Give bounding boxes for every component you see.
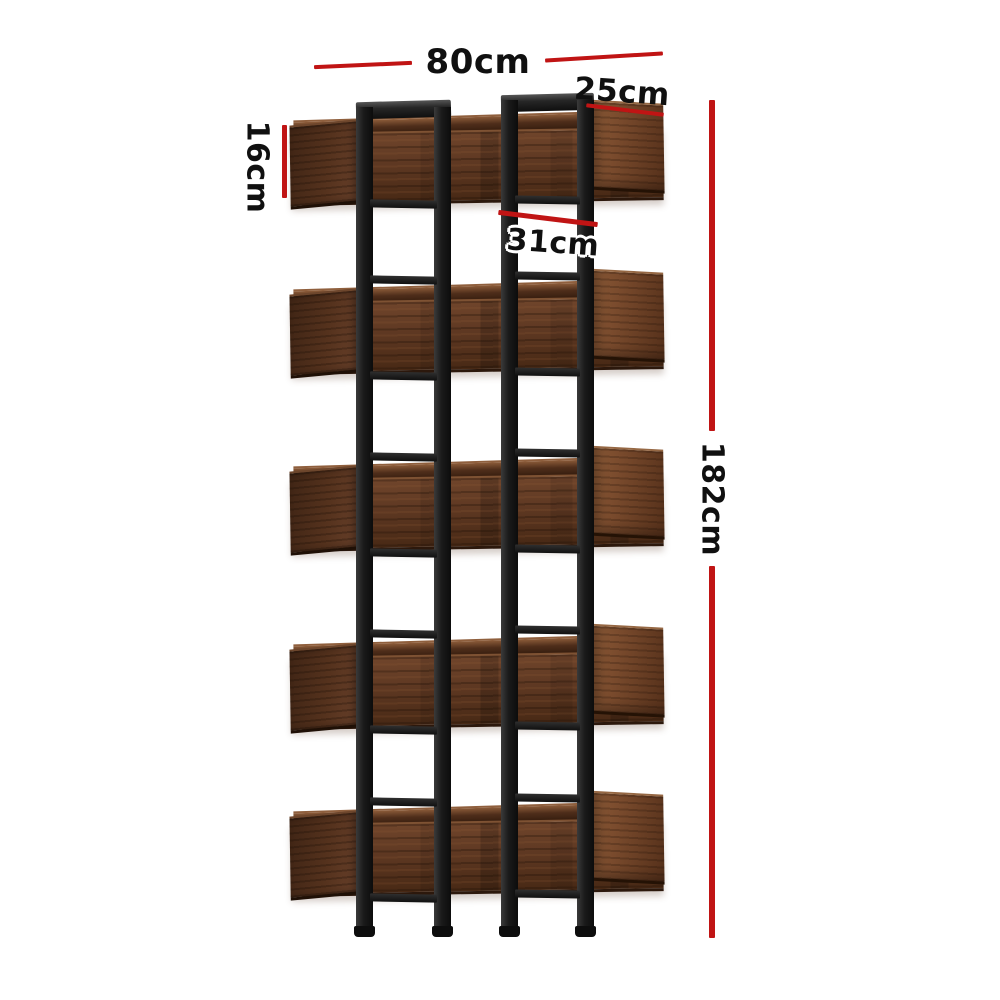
frame-left-rung: [370, 452, 437, 461]
depth-dimension-label: 25cm: [573, 71, 671, 114]
frame-left-front-post: [356, 107, 373, 929]
shelf-right-end-panel: [589, 446, 664, 540]
frame-left-rung: [370, 725, 437, 734]
shelf-box-2: [290, 281, 663, 373]
shelf-right-end-panel: [589, 624, 664, 718]
shelf-left-end-panel: [289, 465, 358, 555]
frame-left-foot: [354, 926, 375, 937]
frame-left-rung: [370, 199, 437, 208]
frame-right-rung: [515, 889, 580, 898]
shelf-spacing-dimension-label: 31cm: [505, 222, 600, 263]
frame-left-foot: [432, 926, 453, 937]
shelf-right-end-panel: [589, 269, 664, 363]
frame-right-rung: [515, 195, 580, 204]
frame-right-foot: [499, 926, 520, 937]
frame-right-rung: [515, 367, 580, 376]
shelf-left-end-panel: [289, 288, 358, 378]
product-dimension-diagram: 80cm 25cm 16cm 31cm 182cm: [0, 0, 1000, 1000]
shelf-box-3: [290, 458, 663, 550]
frame-left-rung: [370, 797, 437, 806]
shelf-left-end-panel: [289, 643, 358, 733]
shelf-box-5: [290, 803, 663, 895]
total-height-dimension-line-bottom: [709, 566, 715, 938]
total-height-dimension-line-top: [709, 100, 715, 431]
total-height-dimension-label: 182cm: [695, 442, 730, 556]
width-dimension-label: 80cm: [426, 42, 531, 82]
frame-left-rung: [370, 629, 437, 638]
frame-right-foot: [575, 926, 596, 937]
shelf-box-1: [290, 112, 663, 204]
frame-left-rung: [370, 371, 437, 380]
bookshelf: [0, 0, 1000, 1000]
shelf-left-end-panel: [289, 119, 358, 209]
frame-right-rung: [515, 448, 580, 457]
frame-right-rung: [515, 625, 580, 634]
frame-right-rung: [515, 544, 580, 553]
frame-right-rung: [515, 271, 580, 280]
shelf-height-dimension-line: [282, 125, 287, 198]
shelf-left-end-panel: [289, 810, 358, 900]
frame-left-rung: [370, 275, 437, 284]
shelf-right-end-panel: [589, 791, 664, 885]
shelf-box-4: [290, 636, 663, 728]
shelf-height-dimension-label: 16cm: [240, 121, 275, 214]
frame-left-rung: [370, 548, 437, 557]
frame-right-rung: [515, 793, 580, 802]
frame-left-rung: [370, 893, 437, 902]
frame-right-rung: [515, 721, 580, 730]
